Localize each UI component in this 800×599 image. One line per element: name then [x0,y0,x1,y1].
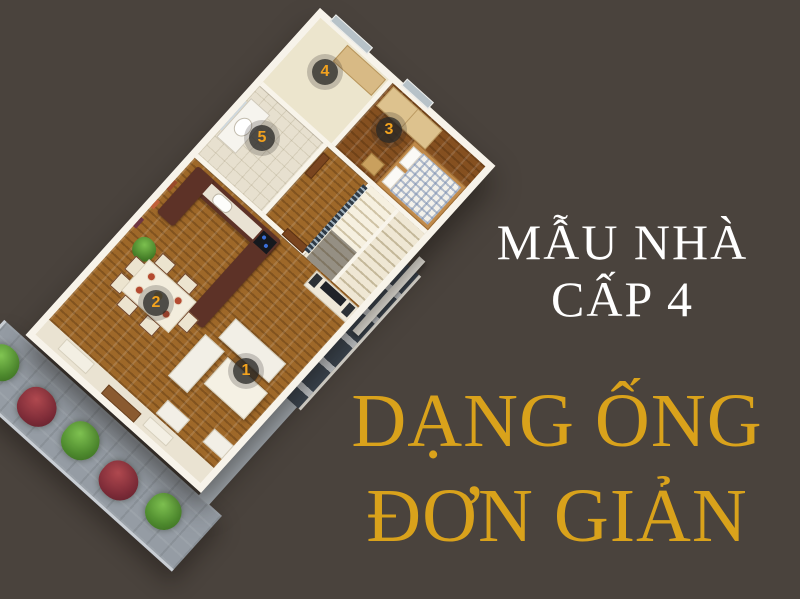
bush-green-icon [0,338,27,389]
poster-subtitle: DẠNG ỐNG ĐƠN GIẢN [318,374,796,564]
subtitle-line-1: DẠNG ỐNG [318,374,796,469]
room-number: 5 [258,129,267,147]
title-line-2: CẤP 4 [450,271,795,328]
bush-red-icon [10,380,65,435]
room-number: 2 [152,294,161,312]
bush-green-icon [138,486,189,537]
poster: 1 2 3 4 5 MẪU NHÀ CẤP 4 DẠNG ỐNG ĐƠN GIẢ… [0,0,800,599]
room-number: 1 [242,362,251,380]
poster-title: MẪU NHÀ CẤP 4 [450,214,795,328]
room-badge-1: 1 [233,358,259,384]
title-line-1: MẪU NHÀ [450,214,795,271]
bush-green-icon [54,414,108,468]
room-badge-3: 3 [376,117,402,143]
room-badge-2: 2 [143,290,169,316]
room-number: 3 [385,121,394,139]
bush-red-icon [91,453,146,508]
subtitle-line-2: ĐƠN GIẢN [318,469,796,564]
room-badge-4: 4 [312,59,338,85]
room-number: 4 [321,63,330,81]
room-badge-5: 5 [249,125,275,151]
